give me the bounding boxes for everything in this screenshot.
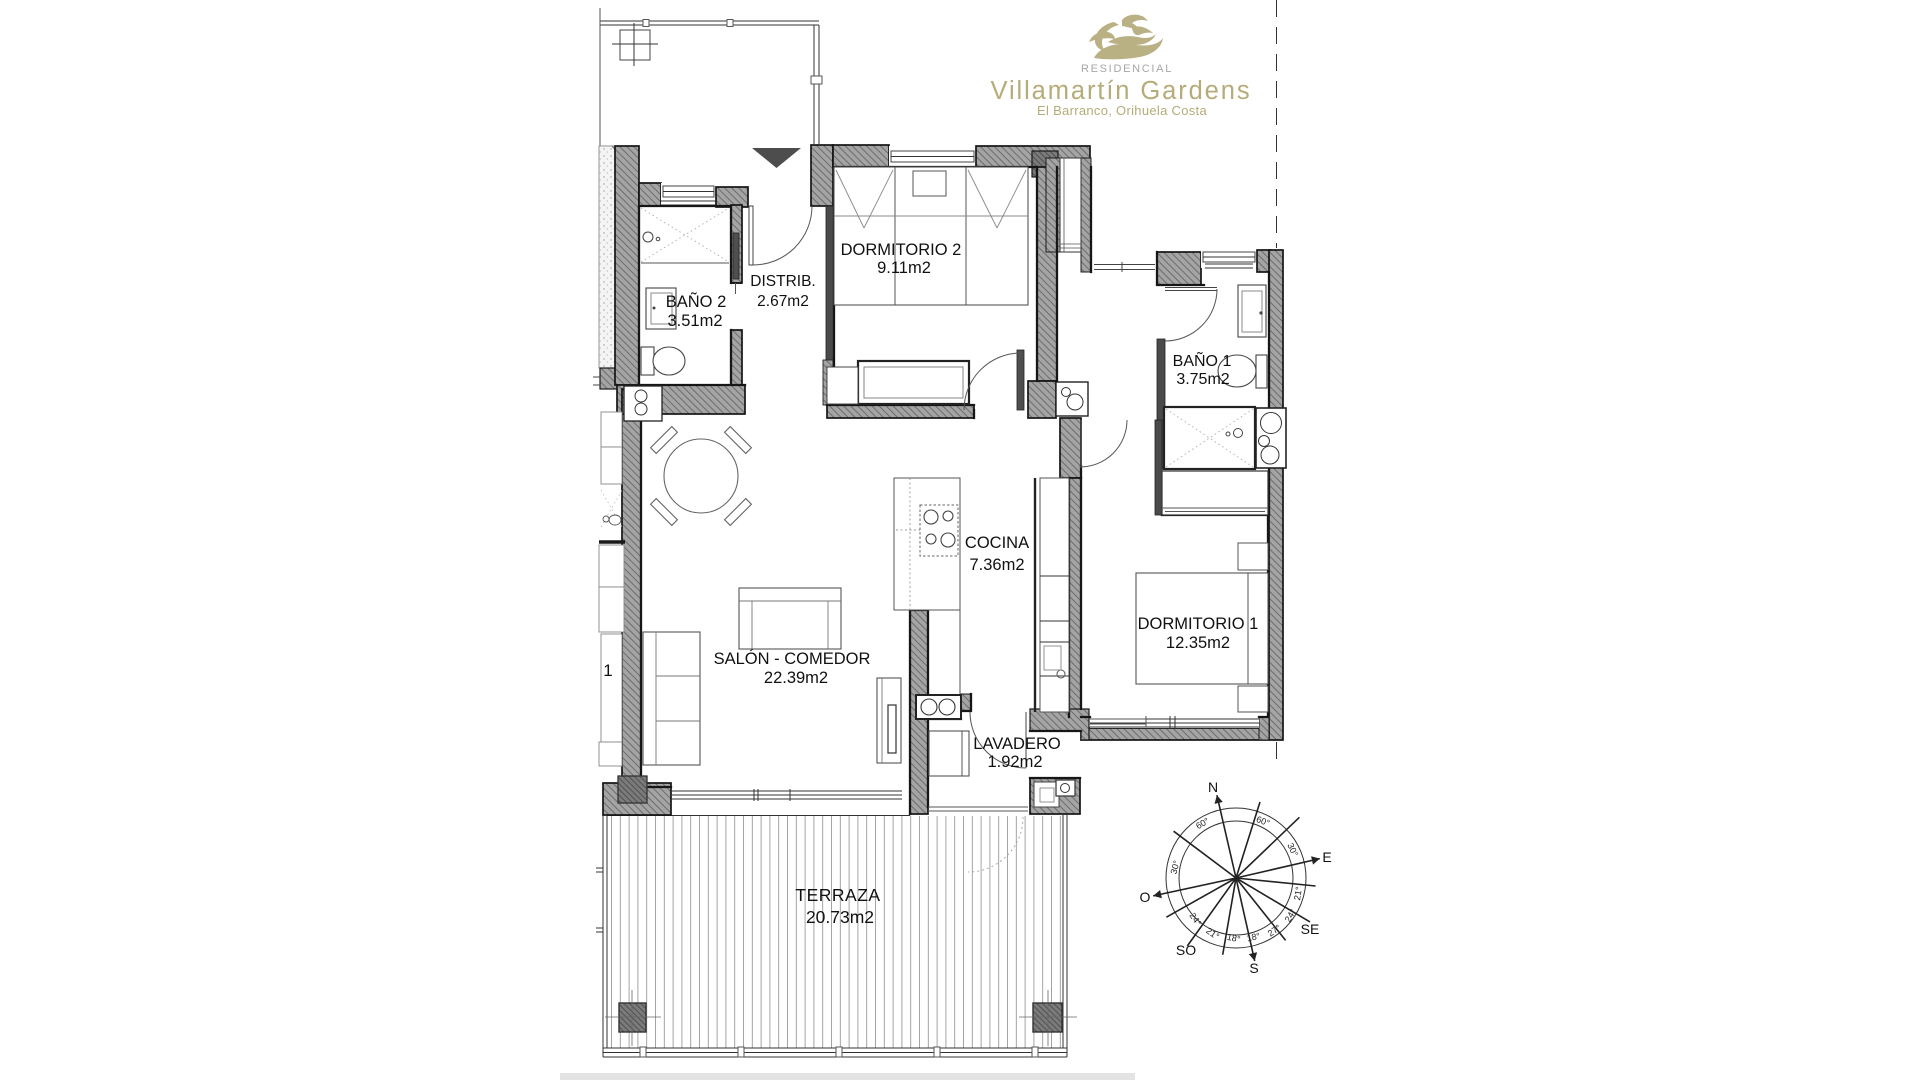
svg-text:COCINA: COCINA: [965, 534, 1029, 552]
svg-text:DORMITORIO 1: DORMITORIO 1: [1138, 615, 1259, 633]
svg-text:SALÓN - COMEDOR: SALÓN - COMEDOR: [714, 649, 871, 668]
svg-text:SE: SE: [1301, 921, 1320, 937]
svg-text:22.39m2: 22.39m2: [764, 669, 828, 687]
svg-text:1.92m2: 1.92m2: [987, 753, 1042, 771]
svg-text:SO: SO: [1176, 942, 1196, 958]
svg-text:2.67m2: 2.67m2: [757, 293, 809, 310]
svg-text:BAÑO 2: BAÑO 2: [666, 291, 727, 311]
svg-text:9.11m2: 9.11m2: [877, 259, 931, 277]
svg-text:LAVADERO: LAVADERO: [973, 735, 1061, 753]
svg-text:S: S: [1249, 960, 1258, 976]
svg-text:N: N: [1208, 779, 1218, 795]
svg-text:3.51m2: 3.51m2: [667, 312, 722, 330]
svg-text:TERRAZA: TERRAZA: [795, 885, 880, 905]
svg-text:20.73m2: 20.73m2: [806, 907, 874, 927]
svg-text:1: 1: [603, 661, 612, 680]
svg-text:RESIDENCIAL: RESIDENCIAL: [1081, 63, 1173, 75]
svg-text:BAÑO 1: BAÑO 1: [1173, 350, 1232, 370]
svg-text:12.35m2: 12.35m2: [1166, 634, 1230, 652]
svg-text:3.75m2: 3.75m2: [1176, 371, 1229, 388]
svg-text:E: E: [1322, 849, 1331, 865]
svg-text:7.36m2: 7.36m2: [969, 556, 1024, 574]
svg-text:DORMITORIO 2: DORMITORIO 2: [841, 241, 962, 259]
svg-text:El Barranco, Orihuela Costa: El Barranco, Orihuela Costa: [1037, 103, 1207, 118]
svg-text:O: O: [1140, 889, 1151, 905]
svg-text:DISTRIB.: DISTRIB.: [750, 273, 815, 290]
svg-text:Villamartín Gardens: Villamartín Gardens: [991, 77, 1252, 105]
